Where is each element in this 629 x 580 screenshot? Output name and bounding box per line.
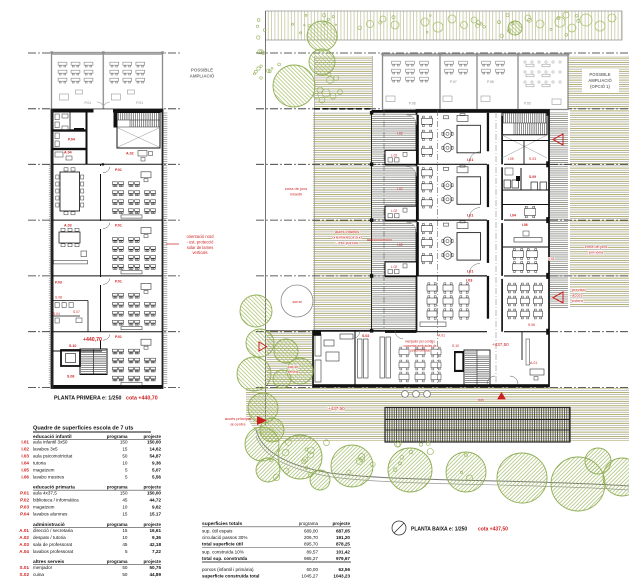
svg-text:tutoria: tutoria [33, 461, 46, 466]
svg-text:10: 10 [122, 505, 128, 510]
svg-text:projecte: projecte [143, 522, 161, 527]
svg-text:serveis: serveis [288, 370, 299, 374]
svg-text:programa: programa [107, 559, 128, 564]
svg-text:45: 45 [122, 498, 128, 503]
svg-text:I.01: I.01 [467, 269, 473, 273]
svg-text:15: 15 [122, 528, 128, 533]
svg-text:I.06: I.06 [522, 223, 528, 227]
svg-text:A.01: A.01 [19, 528, 29, 533]
svg-text:206,70: 206,70 [304, 535, 318, 540]
svg-text:50: 50 [122, 454, 128, 459]
svg-text:I.05: I.05 [508, 157, 514, 161]
svg-text:I.02: I.02 [397, 131, 403, 135]
svg-text:P.01: P.01 [136, 101, 143, 105]
svg-text:(OPCIÓ 1): (OPCIÓ 1) [590, 84, 610, 89]
svg-text:A.02: A.02 [126, 152, 134, 156]
svg-text:9,36: 9,36 [152, 461, 161, 466]
svg-text:10: 10 [122, 535, 128, 540]
svg-text:1045,27: 1045,27 [301, 574, 318, 579]
svg-text:extern: extern [572, 298, 583, 303]
svg-text:solar de lames: solar de lames [187, 245, 214, 250]
svg-text:I.03: I.03 [21, 454, 29, 459]
svg-text:5: 5 [125, 549, 128, 554]
svg-text:+440,70: +440,70 [83, 337, 102, 343]
svg-text:P.03: P.03 [55, 281, 62, 285]
svg-text:PLANTA BAIXA e: 1/250: PLANTA BAIXA e: 1/250 [411, 527, 467, 533]
svg-text:60,00: 60,00 [307, 567, 319, 572]
svg-text:S.02: S.02 [362, 334, 369, 338]
svg-text:54,87: 54,87 [150, 454, 162, 459]
svg-text:magatzem: magatzem [33, 468, 55, 473]
svg-text:7,22: 7,22 [152, 549, 161, 554]
svg-text:P.01: P.01 [115, 224, 122, 228]
svg-text:L.02: L.02 [391, 209, 397, 213]
svg-text:I.06: I.06 [21, 475, 29, 480]
svg-text:I.03: I.03 [466, 279, 472, 283]
svg-text:direcció / secretaria: direcció / secretaria [33, 528, 73, 533]
svg-text:L.02: L.02 [391, 153, 397, 157]
svg-text:P.01: P.01 [115, 279, 122, 283]
svg-text:S.10: S.10 [69, 344, 76, 348]
svg-text:45: 45 [122, 542, 128, 547]
svg-text:A.02: A.02 [19, 535, 29, 540]
svg-text:16,61: 16,61 [150, 528, 162, 533]
svg-text:previsió: previsió [572, 287, 587, 292]
svg-text:S.02: S.02 [20, 572, 30, 577]
svg-text:- est. protecció: - est. protecció [187, 239, 215, 244]
svg-text:S.01: S.01 [20, 565, 30, 570]
svg-text:878,25: 878,25 [336, 542, 350, 547]
svg-text:lavabos professorat: lavabos professorat [33, 549, 74, 554]
svg-text:5,01: 5,01 [548, 257, 555, 261]
svg-text:10: 10 [122, 461, 128, 466]
svg-text:P.04: P.04 [68, 138, 75, 142]
svg-text:sup. útil espais: sup. útil espais [202, 529, 233, 534]
svg-text:accés principal: accés principal [225, 416, 252, 421]
svg-text:689,00: 689,00 [304, 529, 318, 534]
svg-text:pati de: pati de [288, 365, 298, 369]
svg-text:A.04: A.04 [64, 151, 72, 155]
svg-text:infantil: infantil [290, 191, 302, 196]
svg-text:687,05: 687,05 [336, 529, 350, 534]
svg-text:- est. porxos: - est. porxos [336, 240, 358, 245]
svg-text:projecte: projecte [332, 521, 350, 526]
svg-text:5,07: 5,07 [152, 468, 161, 473]
svg-text:I.05: I.05 [21, 468, 29, 473]
svg-text:S.10: S.10 [452, 344, 459, 348]
svg-text:P.07: P.07 [450, 80, 457, 84]
svg-text:menjador: menjador [33, 565, 53, 570]
svg-text:S.03: S.03 [529, 157, 536, 161]
svg-text:I.02: I.02 [21, 447, 29, 452]
svg-text:5,56: 5,56 [152, 475, 161, 480]
svg-text:A.04: A.04 [19, 549, 29, 554]
svg-text:biblioteca / informática: biblioteca / informática [33, 498, 79, 503]
svg-text:cota +440,70: cota +440,70 [126, 396, 158, 402]
svg-text:POSSIBLE: POSSIBLE [589, 72, 610, 77]
svg-text:P.05: P.05 [524, 102, 531, 106]
svg-text:50,75: 50,75 [150, 565, 162, 570]
svg-text:I.02: I.02 [397, 243, 403, 247]
svg-text:P.01: P.01 [20, 491, 29, 496]
svg-text:+437,50: +437,50 [328, 406, 345, 411]
svg-text:A.03: A.03 [19, 542, 29, 547]
svg-text:superficies totals: superficies totals [202, 521, 243, 527]
svg-text:orientades a sud: orientades a sud [332, 234, 362, 239]
svg-text:P.03: P.03 [20, 505, 29, 510]
svg-text:programa: programa [107, 434, 128, 439]
svg-text:191,20: 191,20 [336, 535, 350, 540]
svg-text:S.09: S.09 [529, 175, 536, 179]
svg-text:9,62: 9,62 [152, 505, 161, 510]
svg-text:15: 15 [122, 512, 128, 517]
svg-text:lavabos 3x5: lavabos 3x5 [33, 447, 58, 452]
svg-text:projecte: projecte [143, 434, 161, 439]
svg-text:I.02: I.02 [397, 187, 403, 191]
svg-text:63,56: 63,56 [339, 567, 351, 572]
svg-text:programa: programa [299, 521, 319, 526]
svg-text:porxos (infantil i primària): porxos (infantil i primària) [202, 567, 254, 572]
svg-text:circulació passos 30%: circulació passos 30% [202, 535, 247, 540]
svg-text:zona de jocs: zona de jocs [585, 244, 607, 249]
svg-text:projecte: projecte [143, 559, 161, 564]
svg-text:aules infantils: aules infantils [335, 229, 359, 234]
svg-text:P.04: P.04 [20, 512, 29, 517]
svg-text:P.01: P.01 [85, 101, 92, 105]
svg-text:I.01: I.01 [467, 214, 473, 218]
svg-text:AMPLIACIÓ: AMPLIACIÓ [588, 78, 612, 83]
svg-text:150,00: 150,00 [147, 440, 161, 445]
svg-text:89,57: 89,57 [307, 550, 319, 555]
svg-text:150: 150 [120, 440, 128, 445]
svg-text:S.08: S.08 [55, 296, 62, 300]
svg-text:orientació nord: orientació nord [186, 234, 214, 239]
svg-text:I.04: I.04 [510, 214, 516, 218]
svg-text:menjador per contigu: menjador per contigu [405, 340, 435, 344]
svg-text:POSSIBLE: POSSIBLE [191, 68, 213, 73]
svg-text:15.17: 15.17 [150, 512, 162, 517]
svg-text:sala de professorat: sala de professorat [33, 542, 73, 547]
svg-text:programa: programa [107, 522, 128, 527]
svg-text:101,42: 101,42 [336, 550, 350, 555]
svg-text:AMPLIACIÓ: AMPLIACIÓ [190, 74, 215, 79]
svg-text:total sup. construïda: total sup. construïda [202, 556, 248, 561]
svg-text:al centre: al centre [230, 421, 246, 426]
svg-text:despatx / tutoria: despatx / tutoria [33, 535, 66, 540]
svg-text:I.01: I.01 [21, 440, 29, 445]
svg-text:total superficie útil: total superficie útil [202, 542, 243, 547]
svg-text:5: 5 [125, 475, 128, 480]
svg-text:S.06: S.06 [528, 323, 535, 327]
svg-text:aula psicomotricitat: aula psicomotricitat [33, 454, 73, 459]
svg-text:1043,23: 1043,23 [333, 574, 350, 579]
svg-text:accés: accés [572, 292, 582, 297]
svg-text:convertat amb aules de: convertat amb aules de [403, 344, 436, 348]
svg-text:verticals: verticals [192, 250, 207, 255]
svg-text:psicomotricitat: psicomotricitat [410, 349, 430, 353]
svg-text:sup. construïda 10%: sup. construïda 10% [202, 550, 244, 555]
svg-text:I.04: I.04 [21, 461, 29, 466]
svg-text:L.02: L.02 [391, 265, 397, 269]
svg-text:P.02: P.02 [20, 498, 29, 503]
svg-text:S.08: S.08 [67, 375, 74, 379]
svg-text:A.01: A.01 [530, 361, 537, 365]
svg-text:44,89: 44,89 [150, 572, 162, 577]
svg-text:cuina: cuina [33, 572, 44, 577]
svg-text:15: 15 [122, 447, 128, 452]
svg-text:9,36: 9,36 [152, 535, 161, 540]
svg-text:895,70: 895,70 [304, 542, 318, 547]
svg-text:150: 150 [120, 491, 128, 496]
svg-text:lavabo mestres: lavabo mestres [33, 475, 65, 480]
svg-text:P.06: P.06 [409, 102, 416, 106]
svg-text:I.01: I.01 [467, 158, 473, 162]
svg-text:8.05: 8.05 [478, 398, 484, 402]
svg-text:A.03: A.03 [64, 224, 72, 228]
svg-text:projecte: projecte [143, 485, 161, 490]
svg-text:primària: primària [589, 249, 604, 254]
svg-text:zona de jocs: zona de jocs [285, 186, 307, 191]
svg-text:programa: programa [107, 485, 128, 490]
svg-text:S.07: S.07 [73, 310, 80, 314]
svg-text:50: 50 [122, 565, 128, 570]
svg-text:50: 50 [122, 572, 128, 577]
svg-text:5: 5 [125, 468, 128, 473]
svg-text:aula infantil 3x50: aula infantil 3x50 [33, 440, 68, 445]
svg-text:P.01: P.01 [115, 168, 122, 172]
svg-text:+437,50: +437,50 [492, 342, 509, 347]
svg-text:42,18: 42,18 [150, 542, 162, 547]
svg-text:P.01: P.01 [115, 335, 122, 339]
svg-text:magatzem: magatzem [33, 505, 55, 510]
svg-text:979,67: 979,67 [336, 556, 350, 561]
svg-text:lavabos alumnes: lavabos alumnes [33, 512, 68, 517]
svg-text:P.08: P.08 [487, 80, 494, 84]
svg-text:Quadre de superficies escola d: Quadre de superficies escola de 7 uts [33, 426, 133, 432]
svg-text:14,62: 14,62 [150, 447, 162, 452]
svg-text:cota +437,50: cota +437,50 [478, 527, 508, 533]
svg-text:aula 4x37,5: aula 4x37,5 [33, 491, 57, 496]
svg-text:44,72: 44,72 [150, 498, 162, 503]
svg-text:S.04: S.04 [53, 312, 60, 316]
svg-text:superficie construïda total: superficie construïda total [202, 574, 259, 579]
svg-text:150,00: 150,00 [147, 491, 161, 496]
svg-text:PLANTA PRIMERA e: 1/250: PLANTA PRIMERA e: 1/250 [54, 396, 122, 402]
svg-text:A.01: A.01 [438, 334, 445, 338]
svg-text:985,27: 985,27 [304, 556, 318, 561]
svg-text:sorral: sorral [293, 300, 302, 304]
